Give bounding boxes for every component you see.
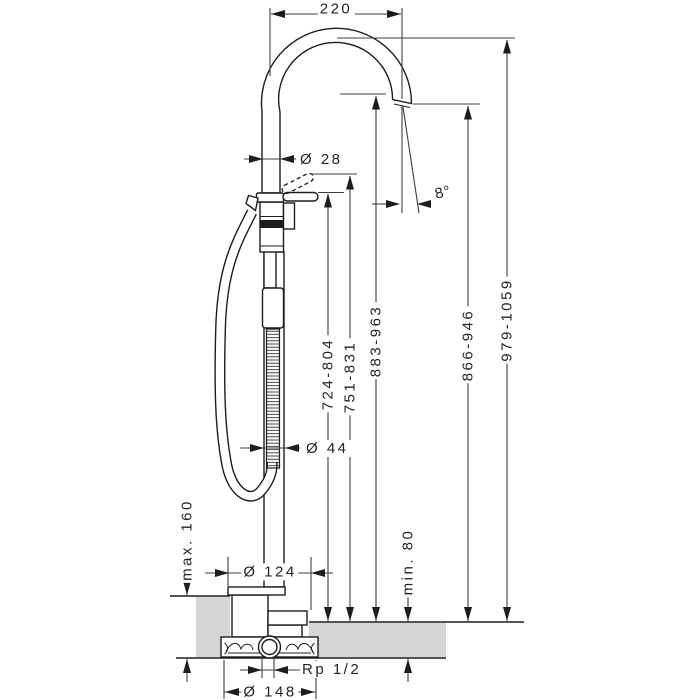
hand-shower-holder-hook bbox=[246, 196, 258, 211]
dim-label-spout-top-height: 883-963 bbox=[367, 303, 384, 380]
dim-label-reach: 220 bbox=[318, 0, 355, 17]
mixer-body bbox=[246, 172, 318, 252]
hose-ribbed-section bbox=[267, 329, 280, 468]
base-escutcheon bbox=[228, 587, 307, 637]
dim-label-outlet-height: 866-946 bbox=[459, 307, 476, 384]
floor-slab-right bbox=[309, 623, 446, 657]
mixer-body-side-detail bbox=[284, 203, 295, 229]
connection-ring-inner bbox=[262, 640, 277, 655]
dim-label-floor-min: min. 80 bbox=[399, 527, 416, 598]
escutcheon-cap-low-floor bbox=[268, 611, 307, 625]
body-top-plate bbox=[257, 193, 284, 202]
body-dark-ring bbox=[260, 221, 284, 228]
dim-label-overall-height: 979-1059 bbox=[498, 276, 515, 363]
spout-angle-slant-line bbox=[403, 107, 419, 213]
hand-shower-head bbox=[264, 248, 276, 288]
lever-handle bbox=[283, 193, 318, 202]
dim-label-escutcheon-diameter: Ø 124 bbox=[241, 563, 298, 580]
technical-drawing-freestanding-bath-mixer: 220 Ø 28 8° 724-804 751-831 883-963 866-… bbox=[0, 0, 700, 700]
escutcheon-cap-high-floor bbox=[228, 587, 285, 595]
lever-handle-raised-dashed bbox=[281, 172, 315, 195]
escutcheon-skirt-left bbox=[232, 595, 268, 637]
hand-shower-grip bbox=[263, 288, 284, 328]
concealed-basic-set bbox=[221, 636, 318, 658]
dim-label-handle-height: 724-804 bbox=[319, 336, 336, 413]
spout bbox=[262, 28, 412, 193]
dim-label-basic-set-diameter: Ø 148 bbox=[241, 683, 298, 700]
dim-label-connection-thread: Rp 1/2 bbox=[300, 661, 363, 678]
escutcheon-skirt-right bbox=[268, 625, 302, 637]
dim-label-riser-diameter: Ø 44 bbox=[304, 440, 351, 457]
dim-label-handle-raised-height: 751-831 bbox=[341, 339, 358, 416]
dim-label-spout-diameter: Ø 28 bbox=[298, 151, 345, 168]
dim-label-floor-max: max. 160 bbox=[178, 497, 195, 583]
